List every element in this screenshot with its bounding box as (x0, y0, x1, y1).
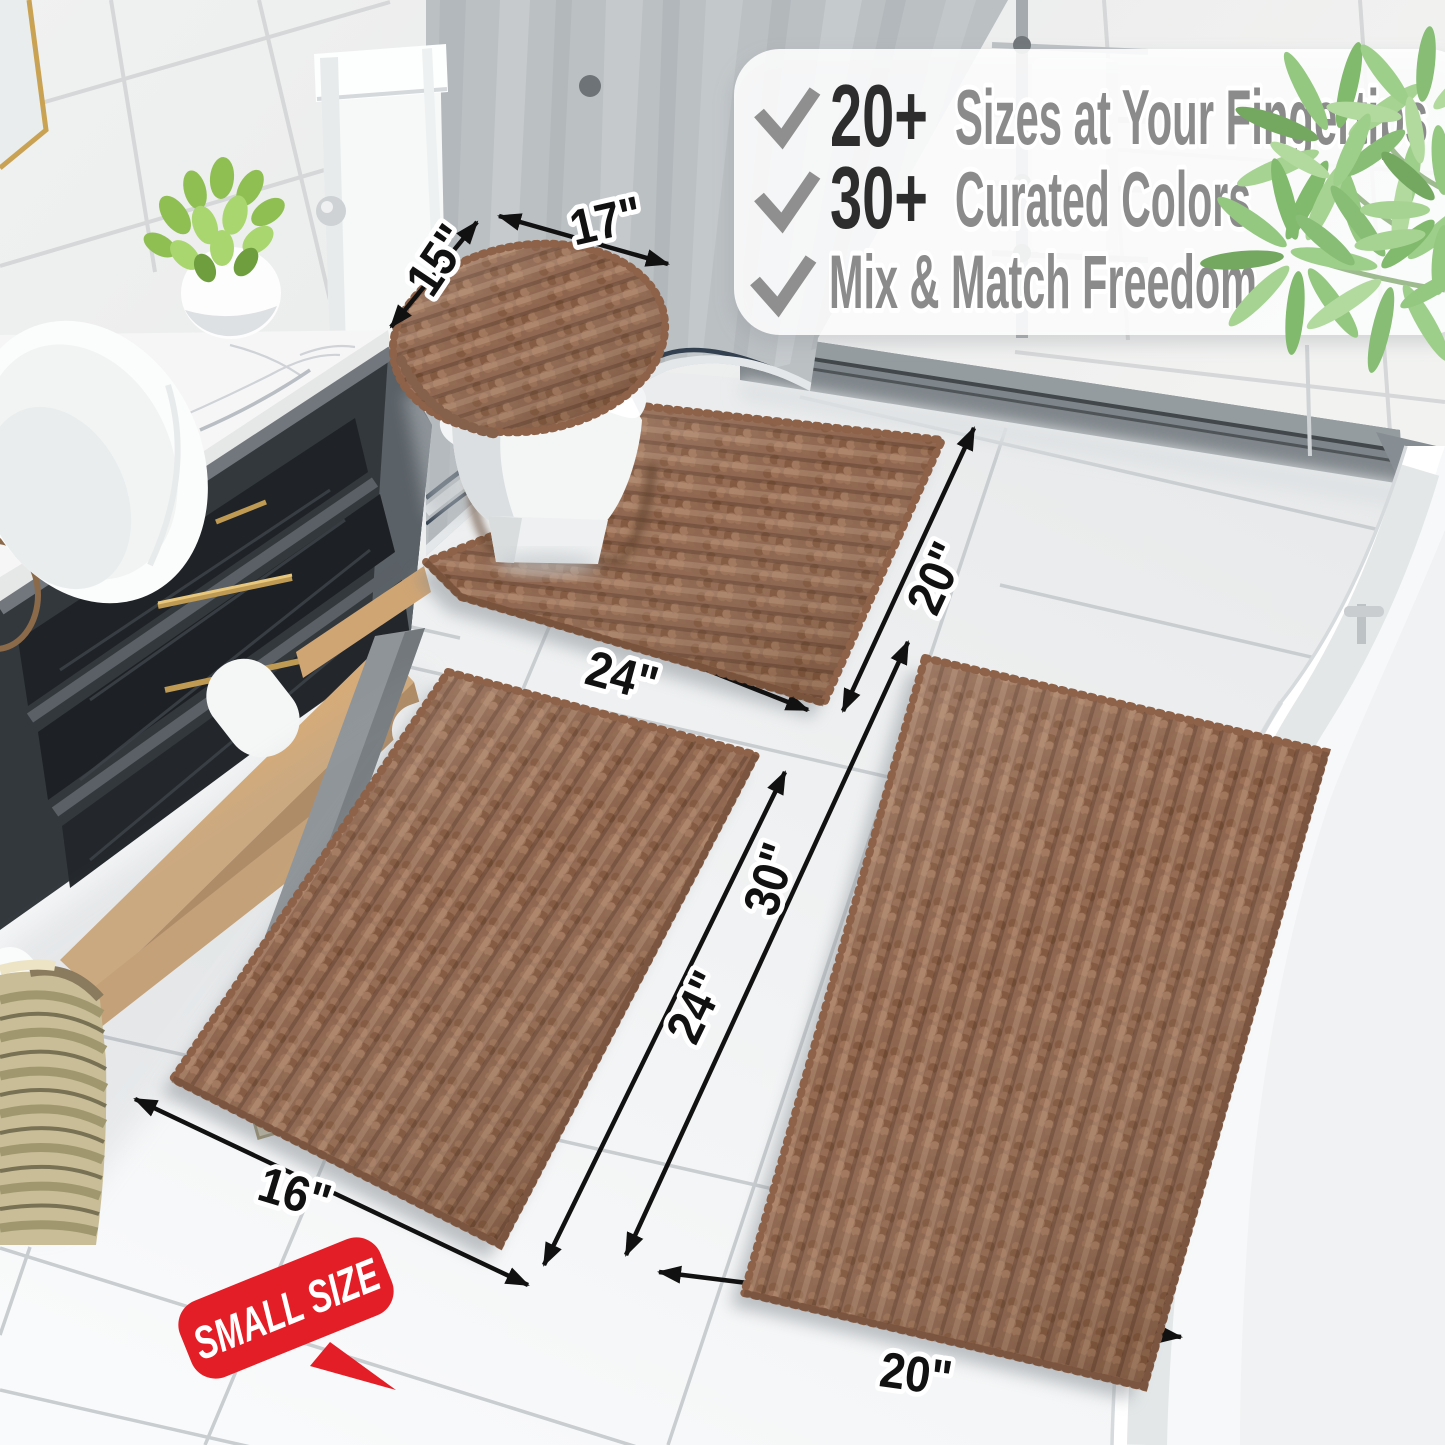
svg-text:Curated Colors: Curated Colors (955, 155, 1251, 243)
svg-text:Mix & Match Freedom: Mix & Match Freedom (829, 240, 1257, 325)
svg-text:30+: 30+ (830, 148, 928, 247)
svg-text:20": 20" (876, 1341, 955, 1406)
